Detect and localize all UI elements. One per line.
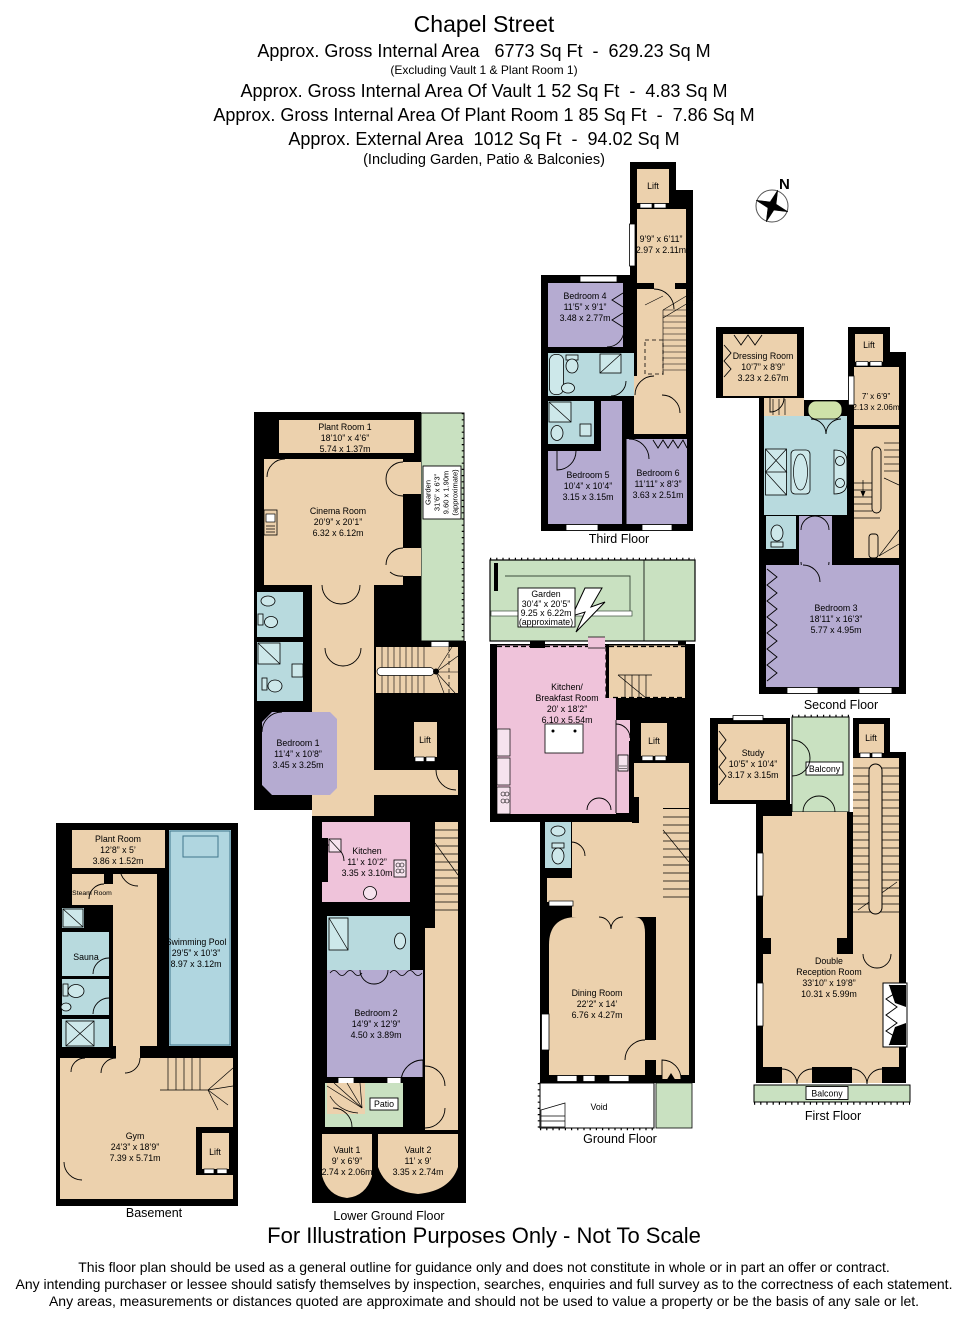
svg-text:20’9” x 20’1”: 20’9” x 20’1”: [314, 517, 362, 527]
svg-text:33’10” x 19’8”: 33’10” x 19’8”: [802, 978, 855, 988]
svg-text:10’4” x 10’4”: 10’4” x 10’4”: [564, 481, 612, 491]
svg-text:29’5” x 10’3”: 29’5” x 10’3”: [172, 948, 220, 958]
svg-text:Kitchen: Kitchen: [352, 846, 381, 856]
svg-text:Lift: Lift: [419, 735, 431, 745]
svg-text:12’8” x 5’: 12’8” x 5’: [100, 845, 136, 855]
svg-text:Garden: Garden: [424, 480, 433, 505]
svg-text:This floor plan should be used: This floor plan should be used as a gene…: [78, 1259, 889, 1275]
svg-text:Chapel Street: Chapel Street: [414, 11, 555, 37]
svg-text:6.10 x 5.54m: 6.10 x 5.54m: [542, 715, 593, 725]
svg-text:24’3” x 18’9”: 24’3” x 18’9”: [111, 1142, 159, 1152]
svg-text:3.17 x 3.15m: 3.17 x 3.15m: [728, 770, 779, 780]
svg-text:(Including Garden, Patio & Bal: (Including Garden, Patio & Balconies): [363, 152, 605, 168]
svg-text:Double: Double: [815, 956, 843, 966]
svg-text:Cinema Room: Cinema Room: [310, 506, 366, 516]
svg-text:Balcony: Balcony: [811, 1089, 843, 1099]
svg-text:Study: Study: [742, 748, 765, 758]
svg-text:31’6” x 6’3”: 31’6” x 6’3”: [433, 473, 442, 511]
svg-text:3.23 x 2.67m: 3.23 x 2.67m: [738, 373, 789, 383]
svg-text:18’10” x 4’6”: 18’10” x 4’6”: [321, 433, 369, 443]
svg-text:Lift: Lift: [209, 1147, 221, 1157]
svg-text:7’ x 6’9”: 7’ x 6’9”: [862, 392, 891, 401]
svg-text:Any intending purchaser or les: Any intending purchaser or lessee should…: [16, 1276, 953, 1292]
svg-text:Balcony: Balcony: [809, 764, 841, 774]
svg-text:Sauna: Sauna: [73, 952, 99, 962]
svg-text:6.32 x 6.12m: 6.32 x 6.12m: [313, 528, 364, 538]
svg-text:Third Floor: Third Floor: [589, 532, 649, 546]
svg-text:Lift: Lift: [863, 340, 875, 350]
svg-text:Bedroom 4: Bedroom 4: [563, 291, 606, 301]
svg-text:Plant Room 1: Plant Room 1: [318, 422, 371, 432]
svg-text:For Illustration Purposes Only: For Illustration Purposes Only - Not To …: [267, 1223, 701, 1248]
svg-text:Plant Room: Plant Room: [95, 834, 141, 844]
svg-text:Lift: Lift: [865, 733, 877, 743]
svg-text:7.39 x 5.71m: 7.39 x 5.71m: [110, 1153, 161, 1163]
svg-text:Second Floor: Second Floor: [804, 698, 878, 712]
svg-text:3.15 x 3.15m: 3.15 x 3.15m: [563, 492, 614, 502]
svg-text:11’ x 9’: 11’ x 9’: [405, 1156, 432, 1166]
svg-text:N: N: [779, 176, 790, 193]
svg-text:10’5” x 10’4”: 10’5” x 10’4”: [729, 759, 777, 769]
svg-text:3.45 x 3.25m: 3.45 x 3.25m: [273, 760, 324, 770]
svg-text:4.50 x 3.89m: 4.50 x 3.89m: [351, 1030, 402, 1040]
svg-text:Approx. External Area 1012 Sq: Approx. External Area 1012 Sq Ft - 94.02…: [288, 129, 679, 149]
svg-text:5.74 x 1.37m: 5.74 x 1.37m: [320, 444, 371, 454]
svg-text:Vault 2: Vault 2: [405, 1145, 432, 1155]
svg-text:First Floor: First Floor: [805, 1109, 861, 1123]
svg-text:Gym: Gym: [126, 1131, 145, 1141]
svg-text:2.97 x 2.11m: 2.97 x 2.11m: [636, 245, 686, 255]
svg-text:20’ x 18’2”: 20’ x 18’2”: [547, 704, 587, 714]
svg-text:3.63 x 2.51m: 3.63 x 2.51m: [633, 490, 684, 500]
svg-text:2.74 x 2.06m: 2.74 x 2.06m: [322, 1167, 373, 1177]
svg-text:Vault 1: Vault 1: [334, 1145, 361, 1155]
svg-text:Basement: Basement: [126, 1206, 183, 1220]
svg-text:(approximate): (approximate): [451, 469, 460, 516]
svg-text:11’5” x 9’1”: 11’5” x 9’1”: [564, 302, 607, 312]
svg-text:10.31 x 5.99m: 10.31 x 5.99m: [801, 989, 857, 999]
svg-text:(Excluding Vault 1 & Plant Roo: (Excluding Vault 1 & Plant Room 1): [390, 63, 577, 77]
svg-text:10’7” x 8’9”: 10’7” x 8’9”: [741, 362, 785, 372]
svg-text:Approx. Gross Internal Area: Approx. Gross Internal Area 6773 Sq Ft -…: [257, 41, 710, 61]
svg-text:9’9” x 6’11”: 9’9” x 6’11”: [640, 234, 683, 244]
svg-text:11’11” x 8’3”: 11’11” x 8’3”: [634, 479, 681, 489]
svg-text:Bedroom 3: Bedroom 3: [814, 603, 857, 613]
svg-text:3.86 x 1.52m: 3.86 x 1.52m: [93, 856, 144, 866]
svg-text:Bedroom 2: Bedroom 2: [354, 1008, 397, 1018]
svg-text:Lift: Lift: [647, 181, 659, 191]
svg-text:5.77 x 4.95m: 5.77 x 4.95m: [811, 625, 862, 635]
svg-text:3.35 x 2.74m: 3.35 x 2.74m: [393, 1167, 444, 1177]
svg-text:2.13 x 2.06m: 2.13 x 2.06m: [852, 403, 900, 412]
svg-text:Garden: Garden: [531, 589, 560, 599]
svg-text:11’4” x 10’8”: 11’4” x 10’8”: [274, 749, 322, 759]
svg-text:Patio: Patio: [374, 1099, 394, 1109]
svg-text:Ground Floor: Ground Floor: [583, 1132, 657, 1146]
svg-text:6.76 x 4.27m: 6.76 x 4.27m: [572, 1010, 623, 1020]
svg-text:Dining Room: Dining Room: [572, 988, 623, 998]
svg-text:14’9” x 12’9”: 14’9” x 12’9”: [352, 1019, 400, 1029]
svg-text:Swimming Pool: Swimming Pool: [166, 937, 227, 947]
svg-text:Steam Room: Steam Room: [72, 890, 112, 897]
svg-text:18’11” x 16’3”: 18’11” x 16’3”: [810, 614, 863, 624]
svg-text:Bedroom 1: Bedroom 1: [276, 738, 319, 748]
svg-text:11’ x 10’2”: 11’ x 10’2”: [347, 857, 387, 867]
svg-text:Breakfast Room: Breakfast Room: [535, 693, 598, 703]
svg-text:Reception Room: Reception Room: [796, 967, 862, 977]
svg-text:Lower Ground Floor: Lower Ground Floor: [333, 1209, 444, 1223]
svg-text:Kitchen/: Kitchen/: [551, 682, 583, 692]
svg-text:(approximate): (approximate): [519, 617, 573, 627]
svg-text:Approx. Gross Internal Area Of: Approx. Gross Internal Area Of Plant Roo…: [213, 105, 754, 125]
svg-text:Void: Void: [590, 1102, 607, 1112]
svg-text:9.60 x 1.90m: 9.60 x 1.90m: [442, 471, 451, 514]
svg-text:9’ x 6’9”: 9’ x 6’9”: [332, 1156, 363, 1166]
svg-text:3.48 x 2.77m: 3.48 x 2.77m: [560, 313, 611, 323]
svg-text:22’2” x 14’: 22’2” x 14’: [577, 999, 618, 1009]
svg-text:Bedroom 5: Bedroom 5: [566, 470, 609, 480]
svg-text:Approx. Gross Internal Area Of: Approx. Gross Internal Area Of Vault 1 5…: [241, 81, 728, 101]
svg-text:3.35 x 3.10m: 3.35 x 3.10m: [342, 868, 393, 878]
svg-text:Any areas, measurements or dis: Any areas, measurements or distances quo…: [49, 1293, 919, 1309]
svg-text:8.97 x 3.12m: 8.97 x 3.12m: [171, 959, 222, 969]
svg-text:Bedroom 6: Bedroom 6: [636, 468, 679, 478]
svg-text:Lift: Lift: [648, 736, 660, 746]
svg-text:Dressing Room: Dressing Room: [733, 351, 794, 361]
